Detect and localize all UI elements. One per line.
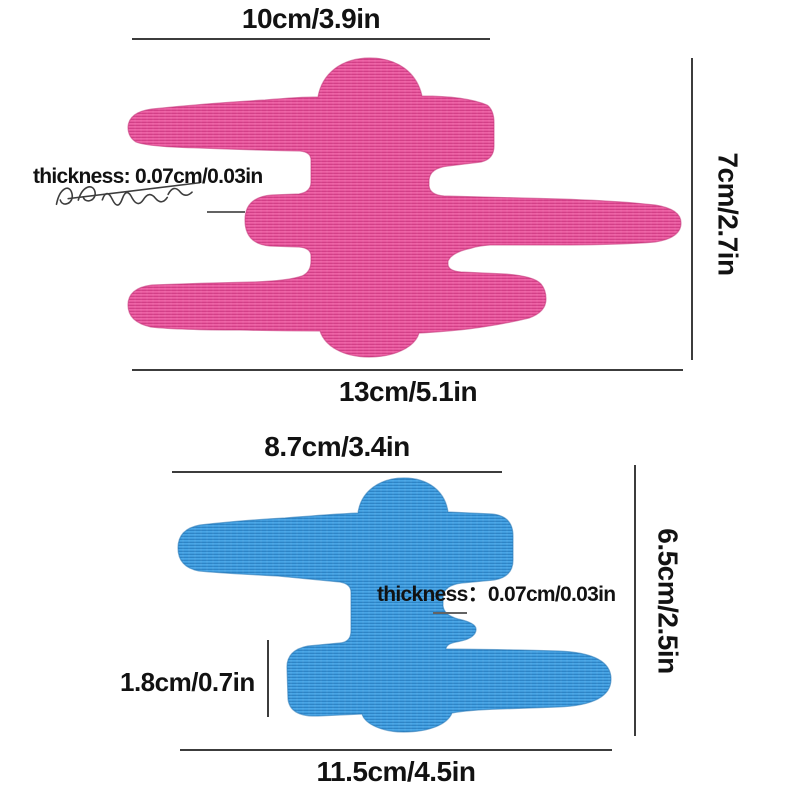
blue-thickness-label: thickness：0.07cm/0.03in xyxy=(377,583,615,606)
blue-bottom-width-label: 11.5cm/4.5in xyxy=(316,757,475,788)
pink-thickness-pointer-line xyxy=(207,211,245,213)
pink-tape-path xyxy=(128,58,681,357)
pink-tape-shape xyxy=(118,50,693,365)
blue-right-height-label: 6.5cm/2.5in xyxy=(652,528,683,673)
blue-top-width-label: 8.7cm/3.4in xyxy=(264,432,409,463)
blue-segment-height-line xyxy=(267,640,269,717)
product-dimension-diagram: 10cm/3.9in thickness: 0.07cm/0.03in 7cm/… xyxy=(0,0,800,800)
pink-height-line xyxy=(691,58,693,360)
blue-thickness-pointer-line xyxy=(433,612,467,614)
pink-top-width-label: 10cm/3.9in xyxy=(242,4,380,35)
pink-bottom-width-line xyxy=(132,369,683,371)
blue-height-line xyxy=(634,465,636,736)
pink-right-height-label: 7cm/2.7in xyxy=(712,152,743,275)
pink-bottom-width-label: 13cm/5.1in xyxy=(339,377,477,408)
blue-bottom-width-line xyxy=(180,749,612,751)
pink-top-width-line xyxy=(132,38,490,40)
blue-segment-height-label: 1.8cm/0.7in xyxy=(120,668,255,697)
